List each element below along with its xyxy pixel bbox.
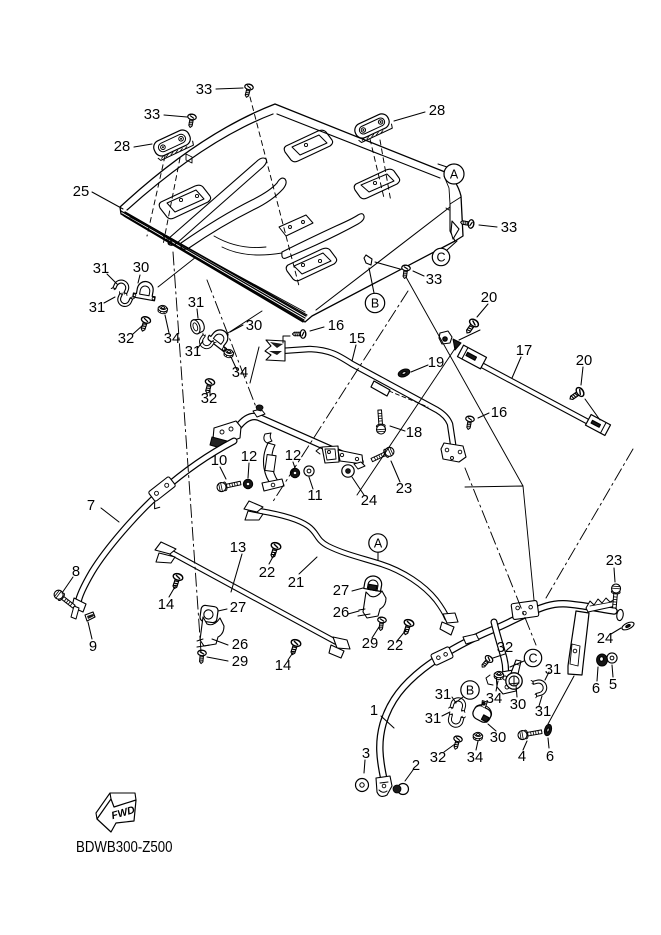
svg-text:C: C xyxy=(436,251,445,265)
svg-text:27: 27 xyxy=(230,600,246,616)
svg-text:33: 33 xyxy=(144,107,160,123)
svg-text:33: 33 xyxy=(501,220,517,236)
svg-text:C: C xyxy=(528,652,537,666)
svg-text:31: 31 xyxy=(89,300,105,316)
svg-text:23: 23 xyxy=(396,481,412,497)
svg-text:B: B xyxy=(466,684,474,698)
svg-text:12: 12 xyxy=(285,448,301,464)
svg-text:28: 28 xyxy=(114,139,130,155)
svg-text:31: 31 xyxy=(535,704,551,720)
svg-text:33: 33 xyxy=(426,272,442,288)
svg-text:12: 12 xyxy=(241,449,257,465)
svg-text:21: 21 xyxy=(288,575,304,591)
svg-text:34: 34 xyxy=(486,691,502,707)
svg-text:23: 23 xyxy=(606,553,622,569)
svg-text:29: 29 xyxy=(362,636,378,652)
svg-text:24: 24 xyxy=(361,493,377,509)
svg-text:29: 29 xyxy=(232,654,248,670)
svg-text:18: 18 xyxy=(406,425,422,441)
svg-text:27: 27 xyxy=(333,583,349,599)
svg-text:13: 13 xyxy=(230,540,246,556)
svg-text:25: 25 xyxy=(73,184,89,200)
svg-text:26: 26 xyxy=(333,605,349,621)
svg-text:31: 31 xyxy=(185,344,201,360)
svg-text:9: 9 xyxy=(89,639,97,655)
svg-text:34: 34 xyxy=(232,365,248,381)
svg-text:30: 30 xyxy=(133,260,149,276)
svg-text:A: A xyxy=(374,537,383,551)
svg-text:7: 7 xyxy=(87,498,95,514)
svg-text:2: 2 xyxy=(412,758,420,774)
svg-text:15: 15 xyxy=(349,331,365,347)
svg-text:31: 31 xyxy=(435,687,451,703)
svg-text:30: 30 xyxy=(490,730,506,746)
svg-text:20: 20 xyxy=(481,290,497,306)
svg-text:31: 31 xyxy=(545,662,561,678)
svg-text:20: 20 xyxy=(576,353,592,369)
svg-text:30: 30 xyxy=(510,697,526,713)
svg-text:A: A xyxy=(450,168,459,182)
svg-text:31: 31 xyxy=(93,261,109,277)
svg-text:14: 14 xyxy=(275,658,291,674)
svg-text:32: 32 xyxy=(430,750,446,766)
svg-text:24: 24 xyxy=(597,631,613,647)
svg-text:BDWB300-Z500: BDWB300-Z500 xyxy=(76,839,173,856)
svg-text:28: 28 xyxy=(429,103,445,119)
svg-text:3: 3 xyxy=(362,746,370,762)
svg-text:6: 6 xyxy=(592,681,600,697)
svg-text:6: 6 xyxy=(546,749,554,765)
svg-text:11: 11 xyxy=(307,488,322,504)
svg-text:32: 32 xyxy=(118,331,134,347)
svg-text:22: 22 xyxy=(387,638,403,654)
svg-text:4: 4 xyxy=(518,749,526,765)
svg-text:10: 10 xyxy=(211,453,227,469)
svg-text:34: 34 xyxy=(467,750,483,766)
svg-text:32: 32 xyxy=(201,391,217,407)
svg-text:32: 32 xyxy=(497,640,513,656)
svg-text:19: 19 xyxy=(428,355,444,371)
svg-text:26: 26 xyxy=(232,637,248,653)
svg-text:1: 1 xyxy=(370,703,378,719)
svg-text:8: 8 xyxy=(72,564,80,580)
svg-text:31: 31 xyxy=(188,295,204,311)
svg-text:33: 33 xyxy=(196,82,212,98)
svg-text:16: 16 xyxy=(491,405,507,421)
svg-text:30: 30 xyxy=(246,318,262,334)
svg-text:31: 31 xyxy=(425,711,441,727)
svg-text:5: 5 xyxy=(609,677,617,693)
svg-text:B: B xyxy=(371,297,379,311)
svg-text:17: 17 xyxy=(516,343,532,359)
svg-text:22: 22 xyxy=(259,565,275,581)
svg-text:16: 16 xyxy=(328,318,344,334)
svg-text:14: 14 xyxy=(158,597,174,613)
svg-text:34: 34 xyxy=(164,331,180,347)
